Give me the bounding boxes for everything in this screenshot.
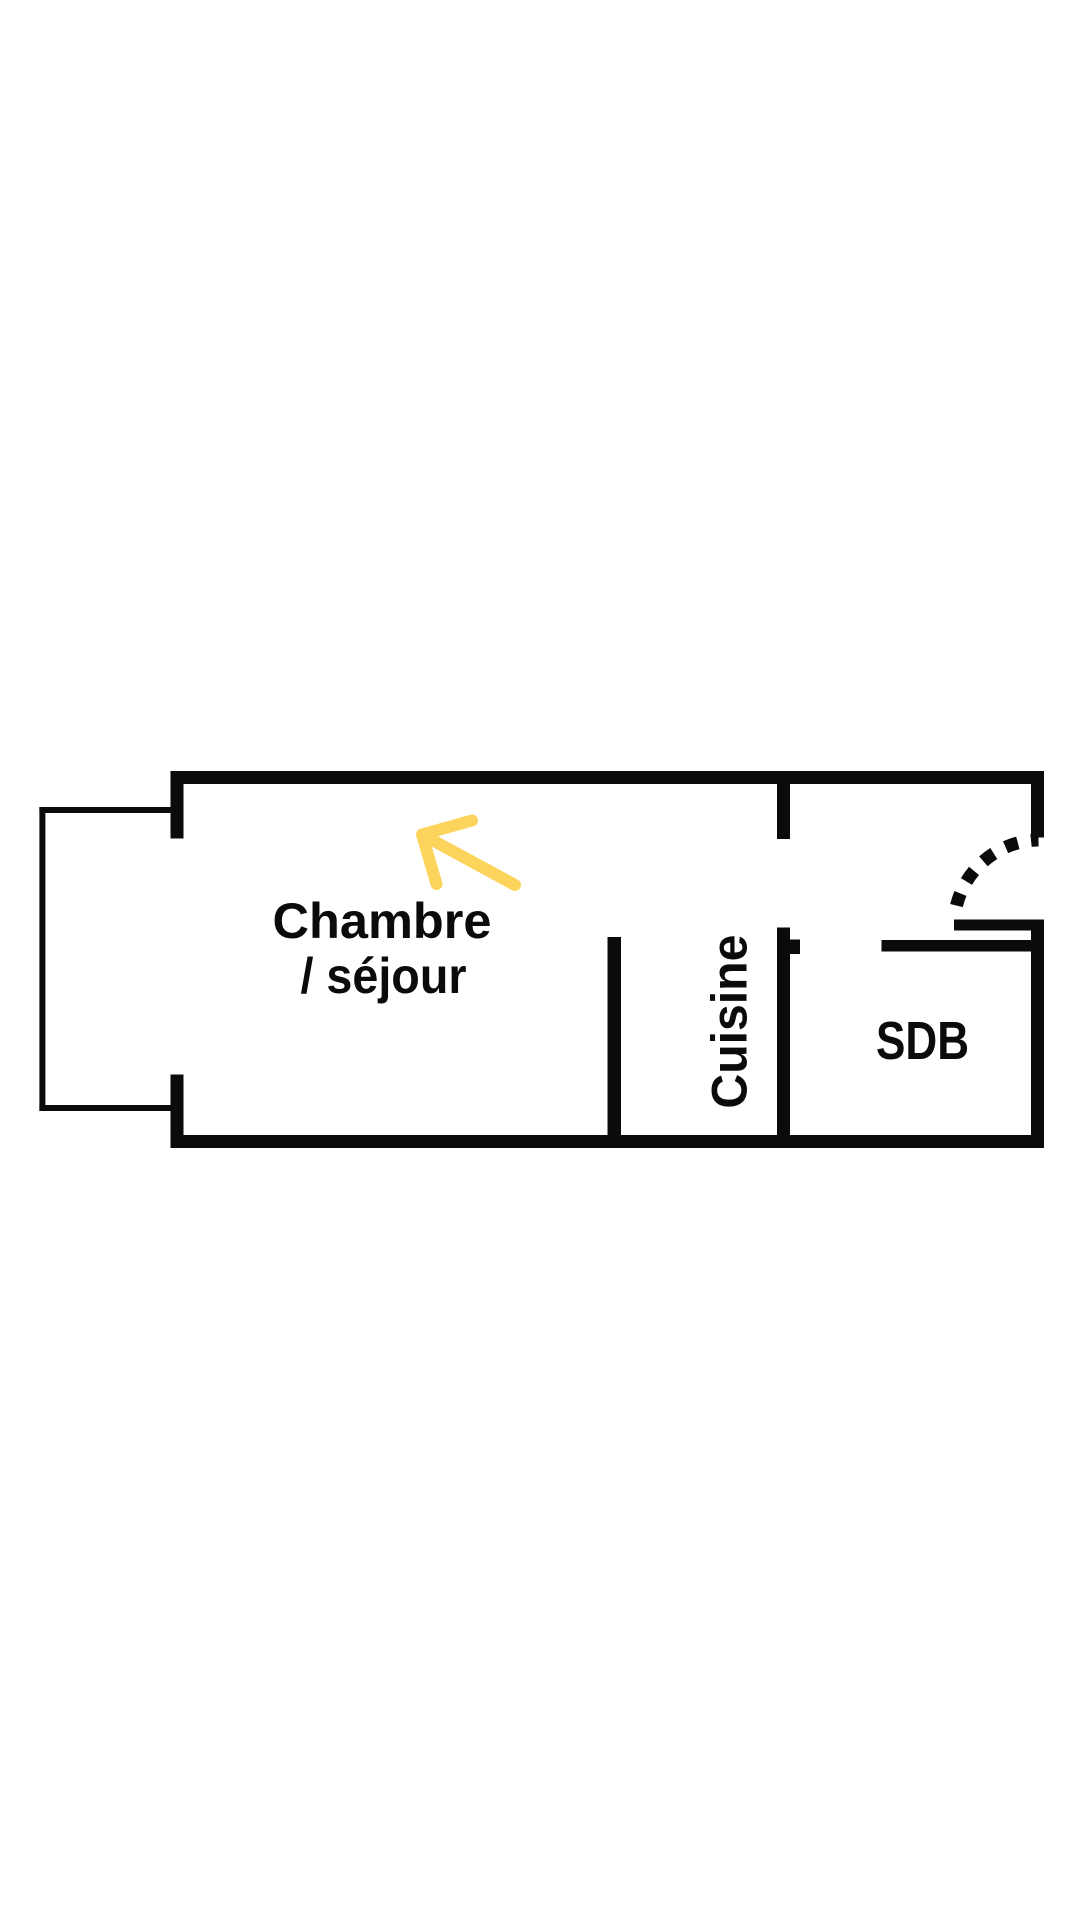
svg-text:Chambre: Chambre xyxy=(273,893,492,949)
svg-text:Cuisine: Cuisine xyxy=(702,935,758,1109)
svg-text:/ séjour: / séjour xyxy=(301,948,467,1004)
svg-text:SDB: SDB xyxy=(876,1011,969,1071)
